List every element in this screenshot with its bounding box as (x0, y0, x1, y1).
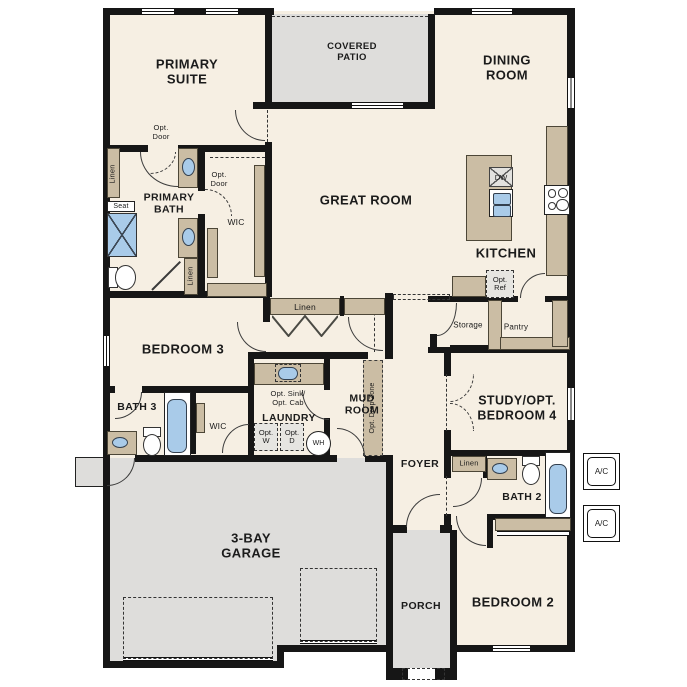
tub-bath3 (167, 399, 187, 453)
shower-primary (107, 213, 137, 257)
wall-garage-top (365, 455, 388, 462)
label-bedroom3: BEDROOM 3 (142, 341, 224, 356)
ac-label: A/C (587, 509, 616, 538)
label-garage: 3-BAY GARAGE (221, 531, 280, 562)
sink-bath3 (112, 437, 128, 448)
island-sink (489, 189, 513, 217)
tub-bath2 (549, 464, 567, 514)
wall-bath-wic (198, 145, 205, 191)
toilet-bowl (115, 265, 136, 290)
optbox-ref: Opt. Ref (486, 270, 514, 298)
floor-plan: DWWHA/CA/CPRIMARY SUITECOVERED PATIODINI… (0, 0, 687, 687)
wall-bed3-bottom (103, 386, 115, 393)
cooktop (544, 185, 570, 215)
label-kitchen: KITCHEN (476, 245, 537, 260)
window-primary-top (206, 8, 238, 15)
bifold-door-icon (272, 315, 338, 337)
wall-left-garage (103, 458, 110, 668)
label-seat: Seat (113, 203, 128, 211)
wall-bath-wic (198, 214, 205, 297)
sink-bath2 (492, 463, 508, 474)
label-bedroom2: BEDROOM 2 (472, 594, 554, 609)
dishwasher: DW (489, 167, 513, 187)
label-bath2: BATH 2 (502, 491, 542, 503)
label-primary-suite: PRIMARY SUITE (156, 57, 218, 88)
toilet-bath3 (141, 427, 161, 455)
optbox-dryer: Opt. D (280, 423, 304, 451)
window-bed2-bottom (493, 645, 530, 652)
wall-garage-bottom (284, 645, 393, 652)
label-opt-door-wic: Opt. Door (210, 171, 227, 189)
sink-basin (493, 193, 511, 205)
bed2-closet-doors (497, 531, 569, 536)
label-great-room: GREAT ROOM (320, 192, 413, 207)
wall-garage-bottom (103, 661, 284, 668)
porch-step (402, 668, 445, 680)
wall-garage-top (135, 455, 337, 462)
study-french-door-line (446, 374, 448, 431)
wall-study-left (444, 352, 451, 376)
label-wic3: WIC (209, 421, 226, 431)
linen-bifold-doors (272, 315, 338, 337)
toilet-bath2 (520, 456, 540, 484)
burner (548, 202, 556, 210)
wall-primary-right (265, 8, 272, 105)
window-bed3-left (103, 336, 110, 366)
label-porch: PORCH (401, 600, 441, 612)
label-covered-patio: COVERED PATIO (327, 41, 377, 63)
ac-unit-1: A/C (583, 453, 620, 490)
wall-bed2-bottom (530, 645, 575, 652)
label-wic-primary: WIC (227, 217, 244, 227)
cabinet-wic-shelf-bottom (207, 283, 267, 297)
window-dining-right (567, 78, 575, 108)
wall-wic-right (265, 142, 272, 297)
wall-bed3-bottom (142, 386, 250, 393)
cabinet-wic-shelf-left (207, 228, 218, 278)
label-opt-door-bath: Opt. Door (152, 124, 169, 142)
garage-door-1 (123, 597, 273, 659)
wall-bed2-hall (487, 514, 493, 548)
wall-porch-left (386, 455, 393, 680)
label-primary-bath: PRIMARY BATH (144, 192, 195, 217)
wall-hall-left (385, 293, 393, 359)
wall-wic-top (205, 145, 267, 152)
label-foyer: FOYER (401, 458, 439, 470)
label-opt-drop-zone: Opt. Drop Zone (369, 382, 377, 433)
garage-door-2 (300, 568, 377, 642)
burner (548, 189, 556, 197)
cabinet-wic-shelf-right (254, 165, 265, 277)
wall-garage-jog (277, 645, 284, 668)
label-storage: Storage (453, 320, 482, 329)
opening-primary-door (267, 110, 269, 142)
label-linen-mid: Linen (187, 266, 196, 285)
cabinet-coat-closet (344, 298, 385, 315)
label-opt-sink-cab: Opt. Sink/ Opt. Cab (271, 390, 306, 408)
label-linen-primary: Linen (109, 164, 118, 183)
ac-unit-2: A/C (583, 505, 620, 542)
ac-label: A/C (587, 457, 616, 486)
wall-top (174, 8, 206, 15)
wall-foyer-right (444, 456, 451, 478)
label-study: STUDY/OPT. BEDROOM 4 (477, 393, 556, 423)
toilet-bowl (522, 463, 541, 486)
label-dining-room: DINING ROOM (483, 53, 531, 84)
label-linen-hall: Linen (294, 302, 316, 312)
window-study-right (567, 388, 575, 420)
label-linen-bath2: Linen (459, 460, 478, 469)
cabinet-bed2-wardrobe (495, 518, 571, 531)
sink-vanity-1 (182, 158, 195, 176)
window-dining-top (472, 8, 512, 15)
sink-basin (493, 205, 511, 217)
wall-porch-right (450, 530, 457, 680)
toilet-primary (108, 264, 135, 289)
wall-laundry-top (248, 352, 330, 359)
sink-vanity-2 (182, 228, 195, 246)
toilet-bowl (143, 434, 162, 457)
cabinet-wic3-shelf (196, 403, 205, 433)
optbox-washer: Opt. W (254, 423, 278, 451)
wall-foyer-bottom (386, 525, 407, 533)
burner (556, 199, 569, 212)
water-heater: WH (306, 431, 331, 456)
patio-sliding-door (352, 102, 403, 109)
cabinet-ref-counter (452, 276, 486, 297)
cabinet-pantry-right (552, 300, 568, 347)
wall-patio-right (428, 14, 435, 109)
window-primary-top (142, 8, 174, 15)
burner (558, 188, 568, 198)
patio-edge (272, 16, 428, 18)
wall-top (512, 8, 574, 15)
wall-top (434, 8, 472, 15)
opening-bath2-hall (446, 476, 448, 516)
wall-right (567, 8, 575, 78)
wic-shelf-dash (210, 157, 265, 159)
wall-foyer-bottom (440, 525, 452, 533)
label-pantry: Pantry (504, 322, 528, 331)
laundry-sink (278, 367, 298, 380)
label-bath3: BATH 3 (117, 401, 157, 413)
opening-hall-greatroom (393, 294, 450, 300)
wall-mud-top (330, 352, 368, 359)
